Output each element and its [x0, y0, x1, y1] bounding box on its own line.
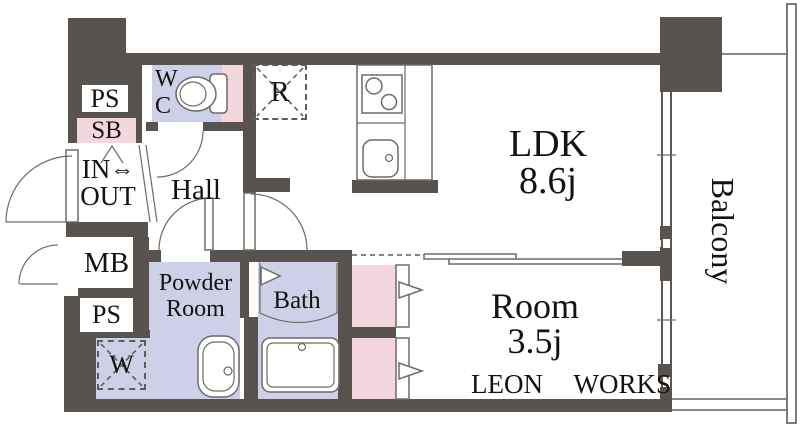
wall-bottom: [64, 399, 672, 412]
wall-top: [120, 53, 662, 65]
wall-hall-powder-right: [210, 250, 352, 262]
wall-right-seg-d: [660, 387, 672, 401]
pillar-top-right: [660, 17, 722, 92]
wall-powder-bath-bottom: [244, 317, 258, 399]
shoe-box: [77, 118, 136, 143]
sliding-door-icon: [424, 254, 622, 264]
wall-sliding-door-end: [622, 251, 662, 266]
balcony-label: Balcony: [705, 161, 741, 301]
wall-closet-divider: [338, 327, 396, 338]
balcony-outer-wall: [786, 3, 797, 424]
ldk-label: LDK 8.6j: [488, 124, 608, 202]
wall-right-seg-b: [660, 247, 672, 281]
entry-box: [77, 143, 139, 222]
floor-plan: PS SB IN⇔ OUT MB PS W W C R Hall LDK 8.6…: [0, 0, 800, 428]
window-gap-2: [661, 377, 672, 387]
wc-side-panel: [222, 63, 243, 122]
closet-top: [352, 265, 396, 327]
pipe-space-bottom-box: [80, 298, 133, 332]
wc-floor: [152, 63, 222, 122]
refrigerator-box: [253, 64, 307, 120]
kitchen-counter-icon: [357, 65, 432, 180]
wall-kitchen-base: [352, 180, 438, 193]
powder-door-icon: [159, 198, 213, 250]
meter-box-door-icon: [19, 245, 58, 284]
wall-hall-powder-left: [140, 250, 161, 262]
hall-label: Hall: [152, 172, 240, 208]
wall-mb-ps-divider: [78, 288, 133, 298]
meter-box: [80, 237, 133, 288]
wall-wc-bottom-right: [203, 122, 243, 131]
closet-doors-icon: [396, 265, 422, 399]
ldk-balcony-window: [661, 92, 672, 226]
brand-label: LEON WORKS: [480, 370, 662, 398]
entry-step-line: [139, 145, 157, 222]
wall-entry-bottom: [66, 222, 148, 237]
wall-right-seg-a: [660, 226, 672, 240]
washer-box: [97, 340, 146, 390]
room-balcony-window: [661, 281, 672, 364]
balcony-top-edge: [720, 53, 786, 55]
ldk-door-icon: [244, 193, 307, 250]
bath-floor: [258, 262, 338, 399]
wall-hall-ldk-stub: [254, 178, 290, 192]
pipe-space-top-box: [82, 85, 128, 112]
wall-powder-bath-top: [240, 262, 249, 318]
powder-room-floor: [148, 262, 240, 399]
ldk-area: 8.6j: [519, 163, 577, 200]
room-label: Room 3.5j: [475, 291, 595, 357]
closet-bottom: [352, 338, 396, 399]
entry-door-opening: [64, 148, 80, 222]
window-gap-1: [661, 239, 672, 248]
room-area: 3.5j: [507, 324, 562, 359]
wc-door-arc-icon: [157, 131, 203, 177]
wall-wc-bottom-left: [146, 122, 158, 131]
balcony-bottom-edge-2: [672, 409, 786, 411]
balcony-bottom-edge: [672, 398, 786, 400]
